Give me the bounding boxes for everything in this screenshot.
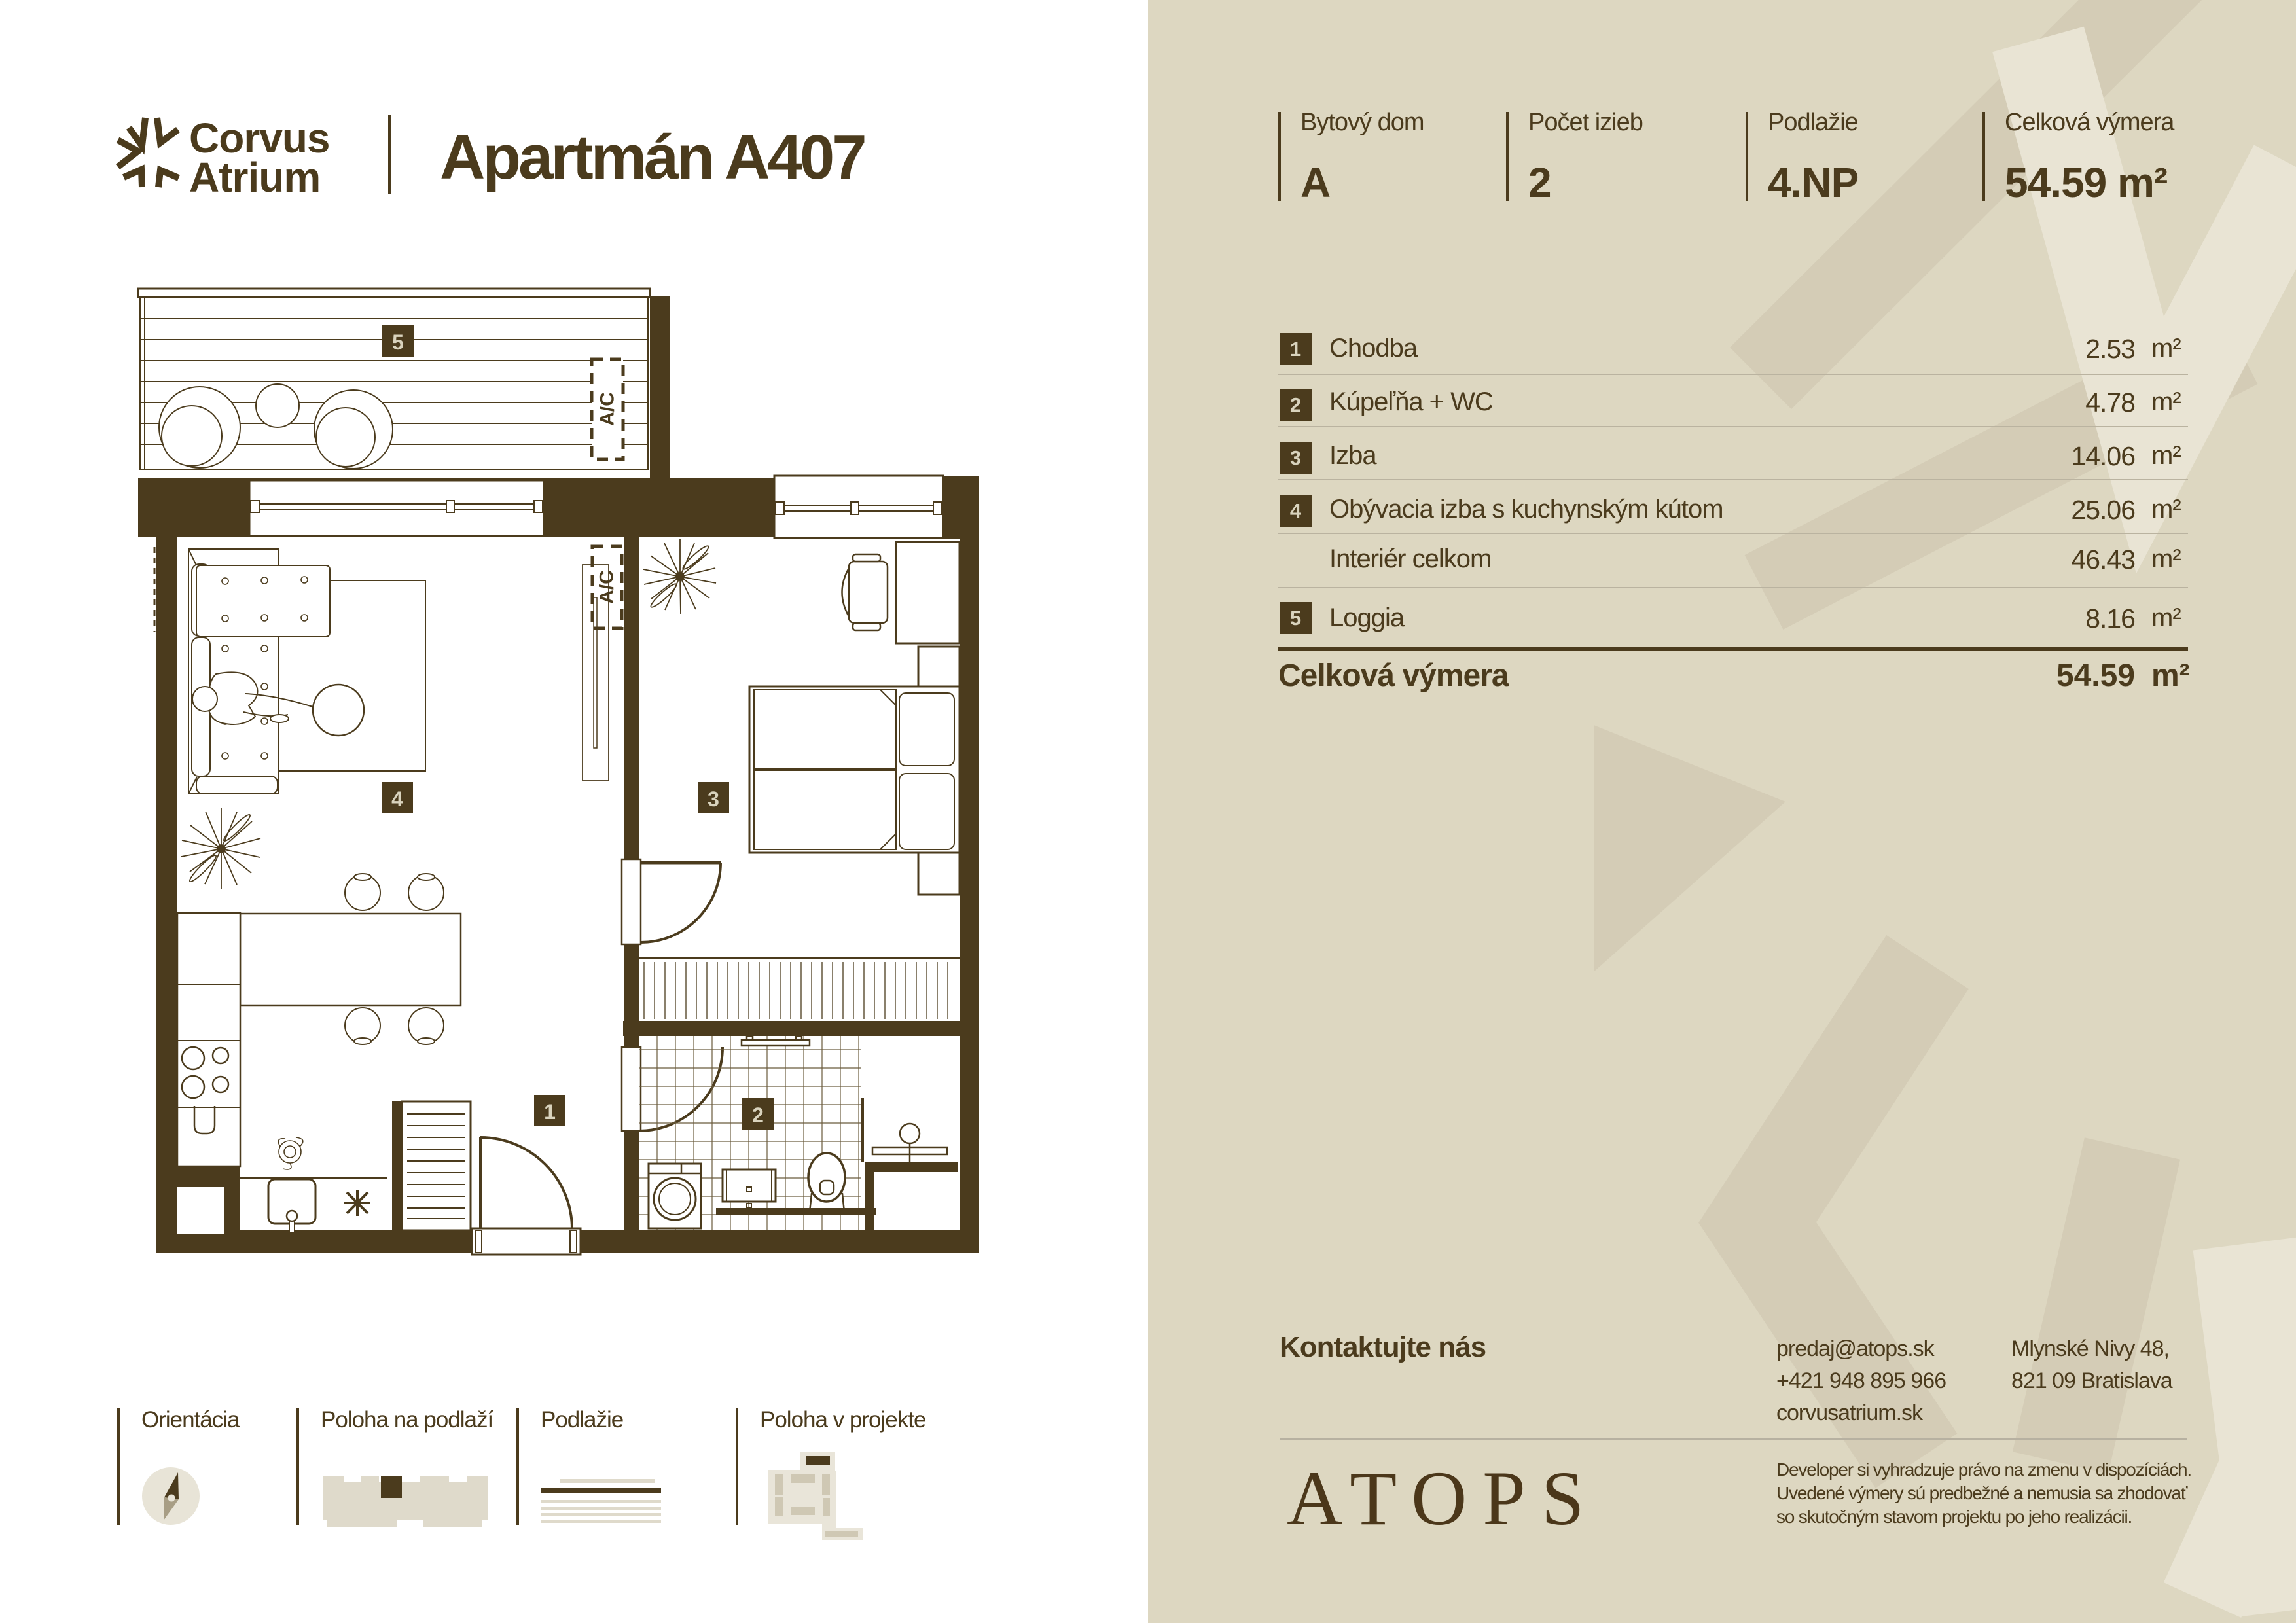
svg-text:3: 3: [708, 787, 719, 811]
svg-text:2: 2: [752, 1103, 764, 1127]
svg-text:1: 1: [544, 1100, 556, 1124]
svg-text:5: 5: [392, 330, 404, 354]
svg-text:A/C: A/C: [597, 392, 619, 426]
svg-text:4: 4: [391, 787, 403, 811]
svg-text:A/C: A/C: [596, 570, 618, 604]
